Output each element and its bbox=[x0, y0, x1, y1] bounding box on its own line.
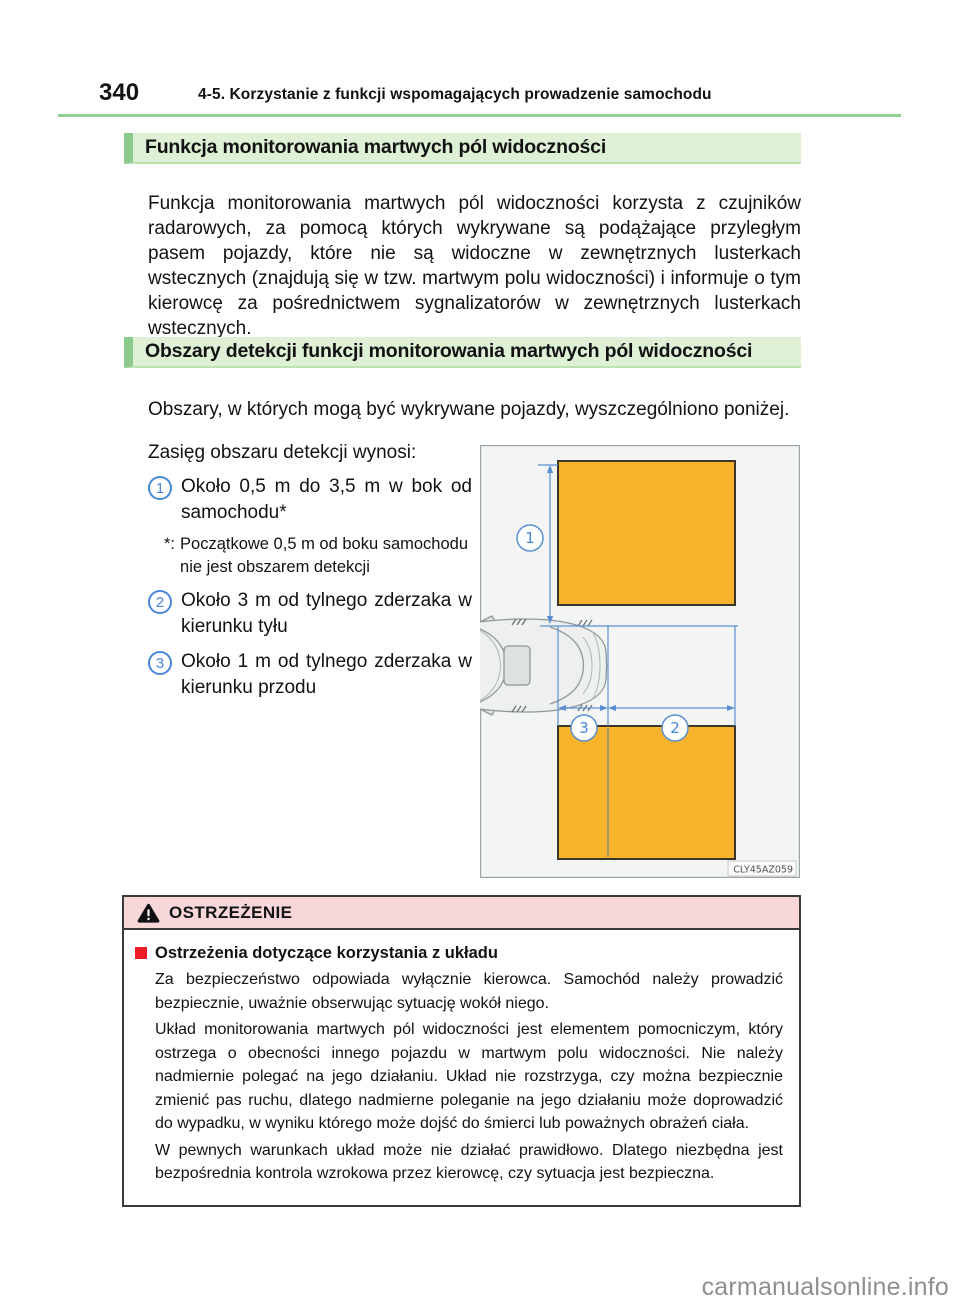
section-title-text: Obszary detekcji funkcji monitorowania m… bbox=[145, 340, 752, 363]
circled-number-3: 3 bbox=[148, 651, 172, 675]
callout-number-3: 3 bbox=[579, 719, 589, 737]
list-item: 2 Około 3 m od tylnego zderzaka w kierun… bbox=[148, 588, 472, 640]
detection-zones-diagram: 1 3 2 CLY45AZ059 bbox=[480, 445, 800, 883]
detection-zone-rear bbox=[558, 726, 735, 859]
list-item-text: Około 1 m od tylnego zderzaka w kierunku… bbox=[181, 649, 472, 701]
footnote: *: Początkowe 0,5 m od boku samochodu ni… bbox=[164, 533, 472, 579]
warning-header: OSTRZEŻENIE bbox=[124, 897, 799, 930]
diagram-svg: 1 3 2 CLY45AZ059 bbox=[480, 445, 800, 878]
section-title-text: Funkcja monitorowania martwych pól widoc… bbox=[145, 136, 606, 159]
warning-paragraph: Układ monitorowania martwych pól widoczn… bbox=[155, 1018, 783, 1136]
warning-header-label: OSTRZEŻENIE bbox=[169, 903, 292, 923]
watermark: carmanualsonline.info bbox=[702, 1273, 949, 1302]
header-rule bbox=[58, 114, 901, 117]
detection-zone-side bbox=[558, 461, 735, 605]
manual-page: 340 4-5. Korzystanie z funkcji wspomagaj… bbox=[0, 0, 960, 1313]
warning-body: Ostrzeżenia dotyczące korzystania z ukła… bbox=[124, 930, 799, 1205]
car-body bbox=[480, 619, 607, 712]
list-item: 1 Około 0,5 m do 3,5 m w bok od samochod… bbox=[148, 474, 472, 526]
list-item-text: Około 0,5 m do 3,5 m w bok od samochodu* bbox=[181, 474, 472, 526]
callout-number-2: 2 bbox=[670, 719, 680, 737]
detection-range-list: Zasięg obszaru detekcji wynosi: 1 Około … bbox=[148, 440, 472, 701]
detection-areas-intro: Obszary, w których mogą być wykrywane po… bbox=[148, 397, 801, 422]
callout-number-1: 1 bbox=[525, 529, 535, 547]
red-square-bullet bbox=[135, 947, 147, 959]
warning-subtitle-row: Ostrzeżenia dotyczące korzystania z ukła… bbox=[135, 942, 786, 964]
figure-code: CLY45AZ059 bbox=[733, 865, 793, 876]
range-intro: Zasięg obszaru detekcji wynosi: bbox=[148, 440, 472, 465]
blind-spot-description: Funkcja monitorowania martwych pól widoc… bbox=[148, 191, 801, 341]
circled-number-2: 2 bbox=[148, 590, 172, 614]
car-top-view bbox=[480, 616, 607, 715]
circled-number-1: 1 bbox=[148, 476, 172, 500]
warning-subtitle: Ostrzeżenia dotyczące korzystania z ukła… bbox=[155, 942, 498, 964]
sunroof bbox=[504, 646, 530, 685]
warning-triangle-icon bbox=[137, 903, 160, 923]
list-item: 3 Około 1 m od tylnego zderzaka w kierun… bbox=[148, 649, 472, 701]
warning-box: OSTRZEŻENIE Ostrzeżenia dotyczące korzys… bbox=[122, 895, 801, 1207]
section-title-detection-areas: Obszary detekcji funkcji monitorowania m… bbox=[124, 337, 801, 368]
warning-paragraph: Za bezpieczeństwo odpowiada wyłącznie ki… bbox=[155, 968, 783, 1015]
chapter-header: 4-5. Korzystanie z funkcji wspomagającyc… bbox=[198, 86, 712, 104]
page-number: 340 bbox=[99, 79, 139, 107]
list-item-text: Około 3 m od tylnego zderzaka w kierunku… bbox=[181, 588, 472, 640]
section-title-blind-spot-monitor: Funkcja monitorowania martwych pól widoc… bbox=[124, 133, 801, 164]
warning-paragraph: W pewnych warunkach układ może nie dział… bbox=[155, 1139, 783, 1186]
footnote-marker: *: bbox=[164, 533, 175, 579]
footnote-text: Początkowe 0,5 m od boku samochodu nie j… bbox=[180, 533, 472, 579]
